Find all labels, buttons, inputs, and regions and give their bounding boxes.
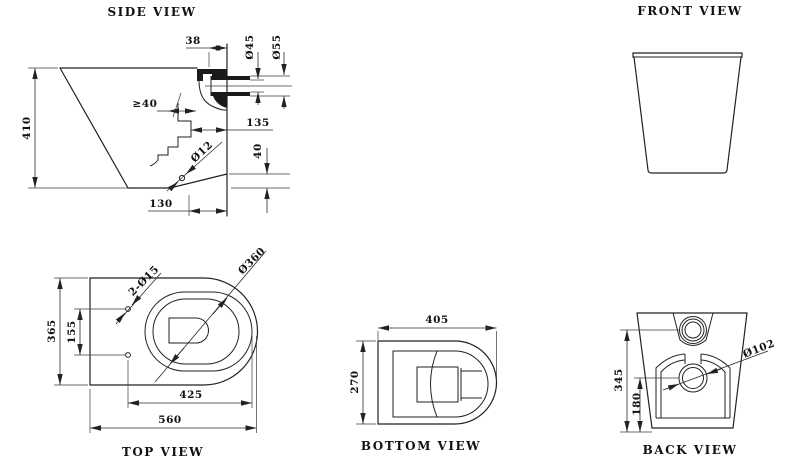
back-view-title: BACK VIEW	[643, 443, 738, 457]
dim-360-text: Ø360	[236, 245, 268, 277]
dim-55-text: Ø55	[271, 34, 283, 59]
outlet-circle-outer	[679, 364, 707, 392]
panel-left-shoulder	[656, 354, 685, 418]
inlet-circle-inner	[685, 322, 701, 338]
top-view-outline	[90, 278, 257, 385]
dim-40: 40	[229, 143, 290, 213]
inlet-circle-outer	[680, 317, 707, 344]
dim-180: 180	[631, 378, 679, 432]
dim-270: 270	[349, 341, 376, 424]
base-rim-inner	[393, 351, 488, 417]
mounting-hole-bottom	[126, 353, 131, 358]
dim-345: 345	[613, 330, 680, 432]
dim-135-text: 135	[246, 117, 269, 129]
front-view-outline	[633, 53, 742, 173]
dim-560-text: 560	[158, 414, 181, 426]
bottom-view-outline	[378, 341, 496, 424]
dim-102-text: Ø102	[741, 337, 776, 360]
break-line	[173, 93, 181, 117]
dim-155: 155	[66, 309, 125, 355]
dim-seal-40: ≥40	[133, 98, 196, 111]
dim-270-text: 270	[349, 370, 361, 393]
dim-130: 130	[148, 195, 227, 216]
dim-405-text: 405	[425, 314, 448, 326]
dim-40-text: 40	[252, 143, 264, 159]
side-view-spud-detail	[197, 69, 292, 110]
dim-360: Ø360	[155, 245, 268, 382]
seat-ring-outer	[145, 292, 252, 371]
top-view-title: TOP VIEW	[122, 445, 204, 459]
side-view-title: SIDE VIEW	[107, 5, 196, 19]
side-view-trapway-profile	[150, 103, 191, 166]
dim-38-text: 38	[185, 35, 201, 47]
dim-2x15: 2-Ø15	[116, 263, 162, 324]
dim-365-text: 365	[46, 319, 58, 342]
dim-seal-40-text: ≥40	[133, 98, 158, 110]
bottom-view: BOTTOM VIEW 405 270	[349, 314, 497, 453]
drawing-sheet: SIDE VIEW	[0, 0, 800, 459]
drawing-canvas: SIDE VIEW	[0, 0, 800, 459]
dim-425: 425	[128, 336, 252, 408]
dim-155-text: 155	[66, 320, 78, 343]
bowl-back-curve	[431, 351, 438, 417]
dim-410-text: 410	[21, 116, 33, 139]
dim-55: Ø55	[271, 34, 284, 109]
front-view: FRONT VIEW	[633, 4, 743, 173]
bowl-rim	[153, 299, 239, 364]
dim-38: 38	[185, 35, 227, 67]
back-view: BACK VIEW Ø102	[613, 313, 777, 457]
dim-180-text: 180	[631, 392, 643, 415]
outlet-circle-inner	[683, 368, 704, 389]
front-view-title: FRONT VIEW	[637, 4, 743, 18]
dim-425-text: 425	[179, 389, 202, 401]
dim-130-text: 130	[149, 198, 172, 210]
dim-405: 405	[378, 314, 497, 380]
dim-45-text: Ø45	[244, 34, 256, 59]
top-view: TOP VIEW 365 155 2-Ø15	[46, 245, 268, 459]
panel-right-shoulder	[701, 354, 730, 418]
bottom-view-title: BOTTOM VIEW	[361, 439, 481, 453]
spud-pipe-top-wall	[211, 76, 250, 80]
dim-2x15-text: 2-Ø15	[126, 263, 161, 298]
sump-opening	[169, 318, 209, 343]
side-view: SIDE VIEW	[21, 5, 292, 216]
spud-pipe-bottom-wall	[211, 92, 250, 96]
dim-135: 135	[191, 117, 273, 130]
dim-345-text: 345	[613, 368, 625, 391]
dim-410: 410	[21, 68, 128, 188]
outlet-box	[417, 367, 458, 402]
